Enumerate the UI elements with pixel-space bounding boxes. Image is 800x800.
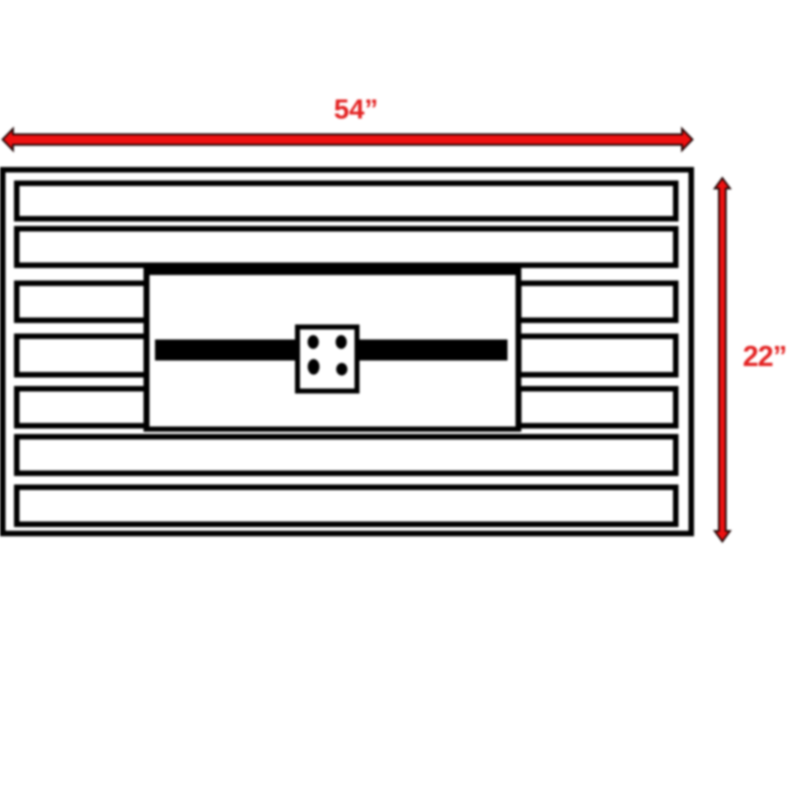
svg-text:22”: 22” bbox=[743, 341, 787, 373]
svg-text:54”: 54” bbox=[334, 94, 378, 125]
